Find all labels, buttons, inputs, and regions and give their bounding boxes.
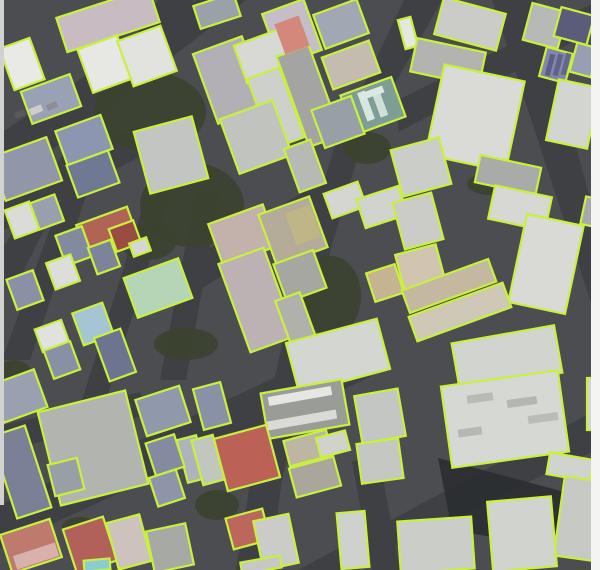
building-footprint <box>146 523 194 570</box>
building-footprint <box>397 517 474 570</box>
left-margin-strip <box>0 0 4 505</box>
building-footprint <box>487 496 557 570</box>
building-footprint <box>48 458 85 496</box>
building-footprint <box>337 511 370 569</box>
building-footprint <box>356 438 403 483</box>
right-margin-strip <box>591 0 600 570</box>
building-footprint <box>84 558 111 570</box>
tree-canopy <box>154 328 218 360</box>
satellite-imagery-with-building-outlines <box>0 0 600 570</box>
building-footprint <box>354 389 406 444</box>
aerial-map-viewport <box>0 0 600 570</box>
